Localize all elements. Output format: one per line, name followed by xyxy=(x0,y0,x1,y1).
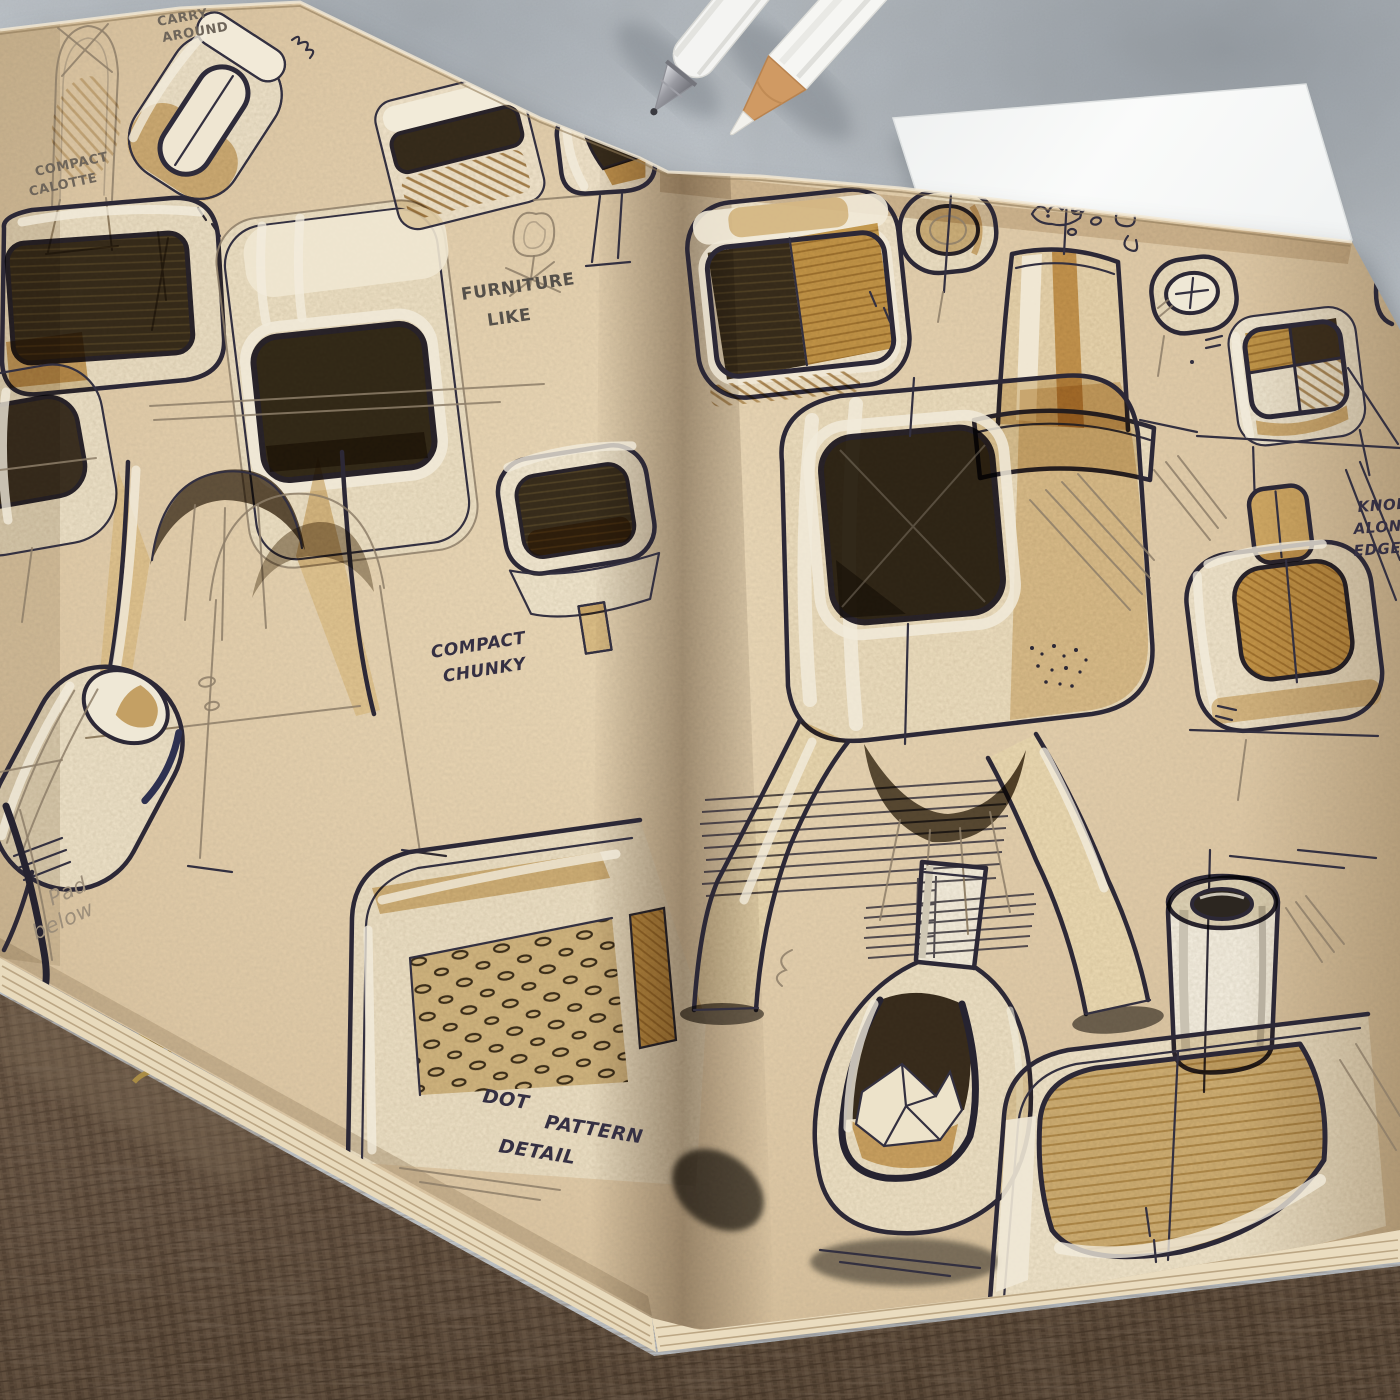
note-edge-line3: EDGE xyxy=(1353,539,1400,560)
note-edge-line2: ALONG xyxy=(1352,516,1400,538)
sketch-window-module xyxy=(683,185,915,408)
scene-canvas: CARRY AROUND COMPACT CALOTTE HOLLOW FURN… xyxy=(0,0,1400,1400)
photo-scene: CARRY AROUND COMPACT CALOTTE HOLLOW FURN… xyxy=(0,0,1400,1400)
note-edge-line1: KNOB xyxy=(1357,494,1400,515)
sketch-dark-window-chair xyxy=(2,198,224,394)
